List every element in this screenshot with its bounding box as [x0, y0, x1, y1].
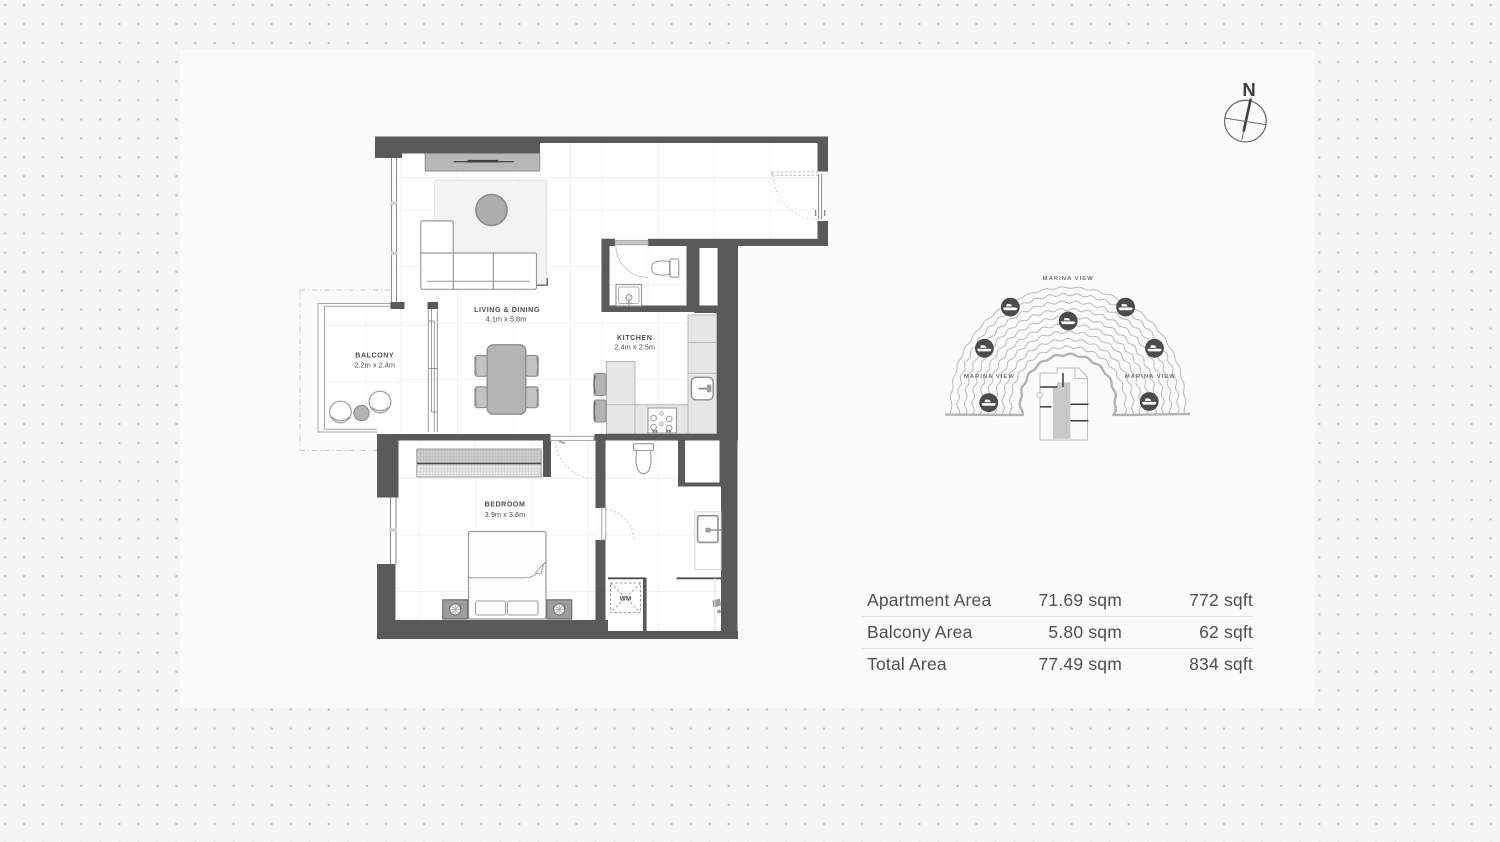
svg-text:BALCONY: BALCONY [355, 352, 394, 360]
svg-text:MARINA VIEW: MARINA VIEW [1043, 276, 1094, 282]
svg-text:MARINA VIEW: MARINA VIEW [1125, 374, 1176, 380]
svg-text:KITCHEN: KITCHEN [617, 334, 652, 342]
svg-text:BEDROOM: BEDROOM [485, 501, 526, 509]
svg-text:4.1m x 5.8m: 4.1m x 5.8m [486, 315, 527, 324]
svg-text:2.2m x 2.4m: 2.2m x 2.4m [354, 361, 395, 370]
svg-text:WM: WM [620, 595, 632, 602]
svg-text:LIVING & DINING: LIVING & DINING [474, 306, 540, 314]
svg-text:2.4m x 2.5m: 2.4m x 2.5m [614, 343, 655, 352]
svg-text:N: N [1242, 79, 1255, 100]
svg-text:3.9m x 3.6m: 3.9m x 3.6m [485, 510, 526, 519]
svg-text:MARINA VIEW: MARINA VIEW [964, 374, 1015, 380]
